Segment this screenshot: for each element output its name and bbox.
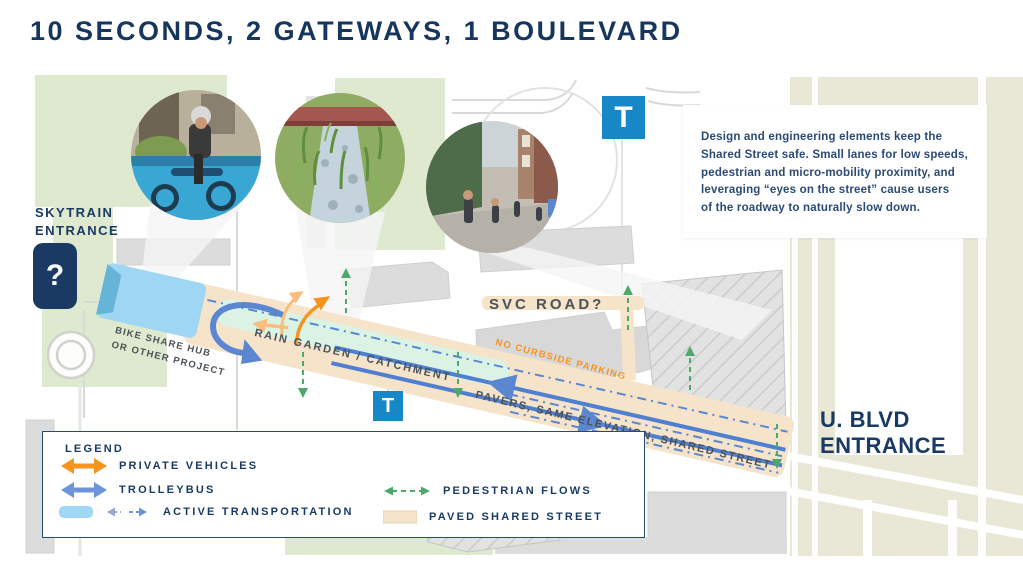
- legend-item-private-vehicles: PRIVATE VEHICLES: [61, 457, 258, 475]
- page-title: 10 SECONDS, 2 GATEWAYS, 1 BOULEVARD: [30, 16, 683, 47]
- legend-label: PRIVATE VEHICLES: [119, 460, 258, 472]
- tan-swatch-icon: [383, 510, 417, 524]
- legend-label: TROLLEYBUS: [119, 484, 216, 496]
- photo-bike-share-station: [131, 90, 261, 220]
- rain-garden-illustration: [275, 93, 405, 223]
- skytrain-question-icon: ?: [33, 243, 77, 309]
- transit-station-icon-north: T: [602, 96, 645, 139]
- legend-item-paved-shared-street: PAVED SHARED STREET: [383, 510, 603, 524]
- legend-label: PAVED SHARED STREET: [429, 511, 603, 523]
- shared-street-illustration: [426, 121, 558, 253]
- orange-double-arrow-icon: [61, 457, 107, 475]
- green-dashed-double-arrow-icon: [383, 485, 431, 497]
- legend-item-trolleybus: TROLLEYBUS: [61, 481, 216, 499]
- photo-shared-street: [426, 121, 558, 253]
- legend: LEGEND PRIVATE VEHICLES TROLLEYBUS ACTIV…: [42, 431, 645, 538]
- legend-label: ACTIVE TRANSPORTATION: [163, 506, 354, 518]
- transit-station-icon-boulevard: T: [373, 391, 403, 421]
- dashed-two-way-arrows-icon: [105, 505, 151, 519]
- legend-label: PEDESTRIAN FLOWS: [443, 485, 592, 497]
- legend-heading: LEGEND: [65, 443, 124, 455]
- slide: { "title": "10 SECONDS, 2 GATEWAYS, 1 BO…: [0, 0, 1023, 576]
- legend-item-pedestrian-flows: PEDESTRIAN FLOWS: [383, 485, 592, 497]
- blue-double-arrow-icon: [61, 481, 107, 499]
- roundabout: [48, 332, 94, 378]
- photo-rain-garden: [275, 93, 405, 223]
- svc-road-label: SVC ROAD?: [489, 296, 604, 313]
- active-transportation-lane-icon: [59, 505, 93, 519]
- u-blvd-entrance-label: U. BLVD ENTRANCE: [820, 407, 946, 459]
- bike-share-illustration: [131, 90, 261, 220]
- legend-item-active-transportation: ACTIVE TRANSPORTATION: [59, 505, 354, 519]
- design-note-callout: Design and engineering elements keep the…: [683, 105, 987, 238]
- skytrain-entrance-label: SKYTRAIN ENTRANCE: [35, 204, 119, 239]
